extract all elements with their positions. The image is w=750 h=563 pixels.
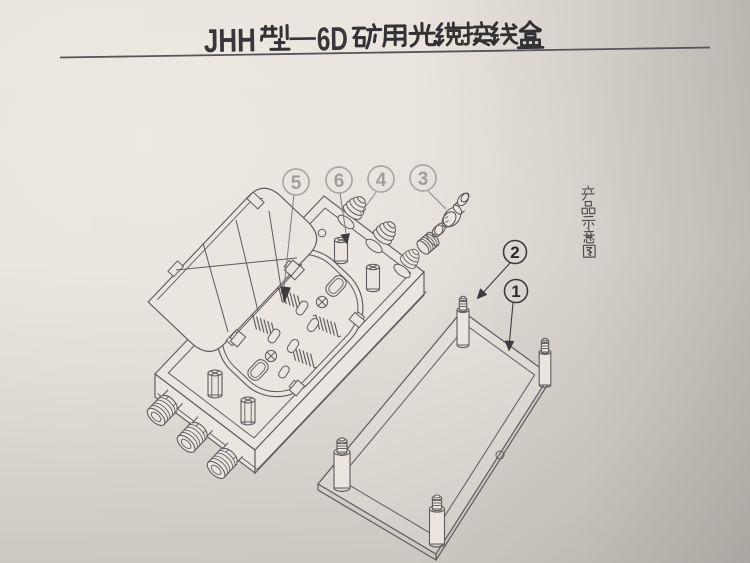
svg-text:JHH: JHH [204,21,257,59]
svg-text:5: 5 [291,173,302,194]
svg-text:1: 1 [511,282,520,301]
svg-text:3: 3 [418,169,429,190]
svg-text:6D: 6D [317,20,349,57]
svg-text:4: 4 [376,170,387,191]
svg-text:6: 6 [334,171,345,192]
svg-text:2: 2 [510,243,519,262]
